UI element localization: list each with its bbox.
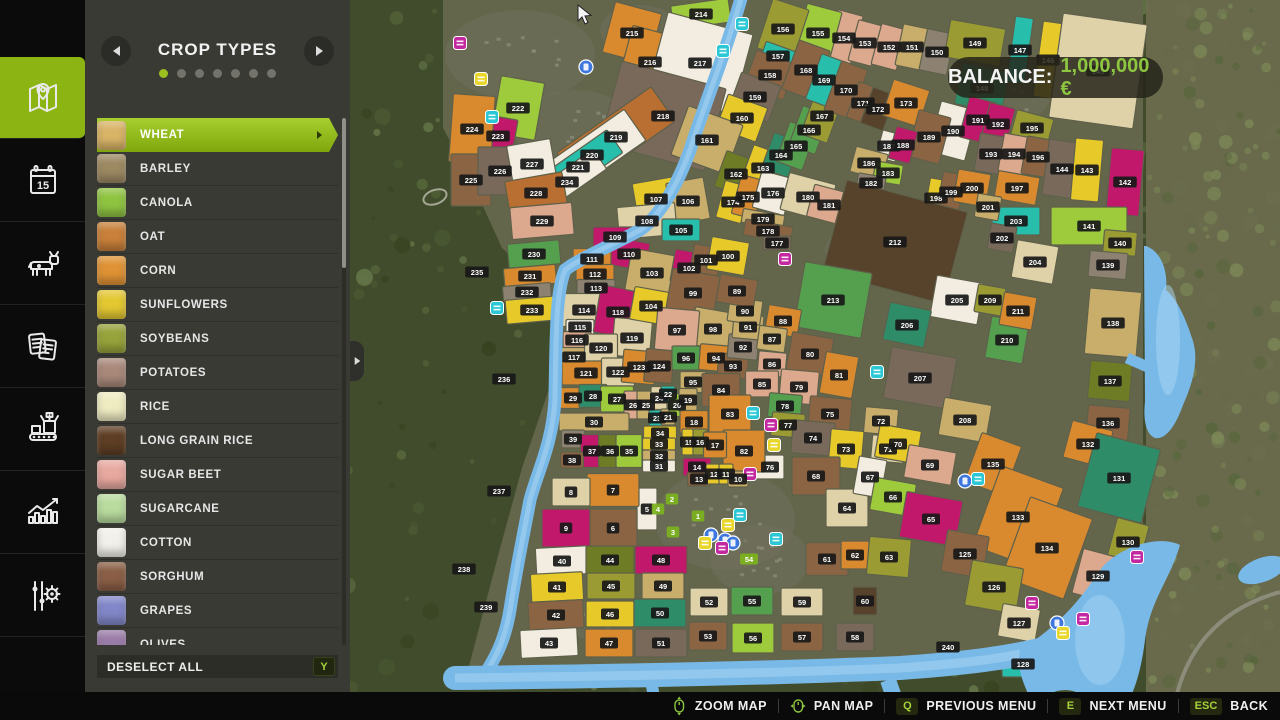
svg-text:80: 80: [806, 350, 814, 359]
svg-text:12: 12: [710, 470, 718, 479]
svg-text:51: 51: [657, 639, 665, 648]
map-poi-icon[interactable]: [747, 407, 760, 420]
svg-text:91: 91: [744, 323, 752, 332]
svg-text:144: 144: [1056, 165, 1069, 174]
svg-text:188: 188: [897, 141, 910, 150]
sidebar-tab-calendar[interactable]: 15: [0, 140, 85, 222]
crop-row-potatoes[interactable]: POTATOES: [97, 356, 338, 390]
svg-text:110: 110: [623, 250, 635, 259]
field-badge-83: 83: [721, 409, 739, 420]
field-badge-210: 210: [995, 335, 1019, 346]
svg-text:19: 19: [684, 396, 692, 405]
svg-text:111: 111: [586, 255, 598, 264]
map-poi-icon[interactable]: [491, 302, 504, 315]
field-badge-84: 84: [712, 385, 730, 396]
field-badge-54: 54: [740, 554, 758, 565]
field-badge-181: 181: [817, 200, 841, 211]
map-poi-icon[interactable]: [768, 439, 781, 452]
svg-text:127: 127: [1013, 619, 1026, 628]
svg-text:78: 78: [781, 402, 789, 411]
chevron-right-icon: [316, 46, 323, 56]
deselect-all-label: DESELECT ALL: [97, 660, 313, 674]
field-badge-239: 239: [474, 602, 498, 613]
field-badge-104: 104: [639, 301, 663, 312]
field-badge-87: 87: [763, 334, 781, 345]
field-badge-57: 57: [793, 632, 811, 643]
svg-text:100: 100: [722, 252, 735, 261]
field-badge-232: 232: [515, 287, 539, 298]
field-badge-81: 81: [830, 370, 848, 381]
svg-text:230: 230: [528, 250, 541, 259]
svg-text:124: 124: [653, 362, 666, 371]
svg-text:79: 79: [795, 383, 803, 392]
crop-row-sorghum[interactable]: SORGHUM: [97, 560, 338, 594]
canola-icon: [97, 188, 126, 217]
svg-text:49: 49: [659, 582, 667, 591]
crop-row-olives[interactable]: OLIVES: [97, 628, 338, 645]
field-badge-46: 46: [601, 609, 619, 620]
field-badge-70: 70: [889, 439, 907, 450]
map-poi-icon[interactable]: [734, 509, 747, 522]
field-badge-103: 103: [640, 268, 664, 279]
crop-label: POTATOES: [140, 367, 206, 379]
svg-text:173: 173: [900, 99, 913, 108]
field-badge-115: 115: [568, 322, 592, 333]
page-dot-5[interactable]: [249, 69, 258, 78]
field-badge-88: 88: [774, 316, 792, 327]
svg-text:33: 33: [655, 440, 663, 449]
svg-text:200: 200: [966, 184, 979, 193]
mouse-icon: [790, 696, 806, 716]
map-poi-icon[interactable]: [770, 533, 783, 546]
crop-label: LONG GRAIN RICE: [140, 435, 253, 447]
map-poi-icon[interactable]: [1131, 551, 1144, 564]
field-badge-128: 128: [1011, 659, 1035, 670]
scrollbar-thumb[interactable]: [342, 118, 346, 268]
map-poi-icon[interactable]: [1077, 613, 1090, 626]
field-badge-134: 134: [1035, 543, 1059, 554]
field-badge-36: 36: [601, 446, 619, 457]
separator: [1178, 699, 1179, 713]
svg-text:229: 229: [536, 217, 549, 226]
svg-text:238: 238: [458, 565, 471, 574]
svg-text:108: 108: [641, 217, 654, 226]
deselect-all-button[interactable]: DESELECT ALL Y: [97, 655, 338, 678]
page-dot-3[interactable]: [213, 69, 222, 78]
field-badge-224: 224: [460, 124, 484, 135]
field-badge-80: 80: [801, 349, 819, 360]
map-poi-icon[interactable]: [779, 253, 792, 266]
svg-text:43: 43: [545, 639, 553, 648]
crop-label: BARLEY: [140, 163, 191, 175]
field-badge-4: 4: [652, 504, 665, 515]
svg-text:226: 226: [494, 167, 507, 176]
map-poi-icon[interactable]: [1026, 597, 1039, 610]
grapes-icon: [97, 596, 126, 625]
field-badge-75: 75: [821, 409, 839, 420]
crop-row-rice[interactable]: RICE: [97, 390, 338, 424]
sugar-beet-icon: [97, 460, 126, 489]
svg-text:182: 182: [865, 179, 878, 188]
contracts-icon: [21, 325, 65, 369]
field-badge-231: 231: [518, 271, 542, 282]
field-badge-34: 34: [651, 428, 669, 439]
panel-collapse-tab[interactable]: [350, 341, 364, 381]
svg-text:34: 34: [656, 429, 665, 438]
svg-text:97: 97: [673, 326, 681, 335]
svg-text:228: 228: [530, 189, 543, 198]
crop-types-panel: CROP TYPES WHEATBARLEYCANOLAOATCORNSUNFL…: [85, 0, 350, 692]
sidebar-tab-production[interactable]: [0, 389, 85, 471]
field-badge-229: 229: [530, 216, 554, 227]
field-badge-93: 93: [724, 361, 742, 372]
crop-row-sugar-beet[interactable]: SUGAR BEET: [97, 458, 338, 492]
svg-text:151: 151: [906, 43, 919, 52]
field-badge-137: 137: [1098, 376, 1122, 387]
map-poi-icon[interactable]: [736, 18, 749, 31]
field-badge-225: 225: [459, 175, 483, 186]
svg-text:70: 70: [894, 440, 902, 449]
crop-row-corn[interactable]: CORN: [97, 254, 338, 288]
field-badge-199: 199: [939, 187, 963, 198]
svg-text:211: 211: [1012, 307, 1024, 316]
crop-list-scrollbar[interactable]: [342, 118, 346, 645]
svg-text:5: 5: [645, 505, 649, 514]
svg-text:234: 234: [561, 178, 574, 187]
field-badge-74: 74: [804, 433, 822, 444]
sidebar-tab-statistics[interactable]: [0, 472, 85, 554]
svg-text:140: 140: [1114, 239, 1127, 248]
crop-row-canola[interactable]: CANOLA: [97, 186, 338, 220]
field-badge-153: 153: [853, 38, 877, 49]
field-badge-228: 228: [524, 188, 548, 199]
hotkey-pan-map[interactable]: PAN MAP: [790, 696, 874, 716]
svg-text:147: 147: [1014, 46, 1027, 55]
field-badge-96: 96: [677, 353, 695, 364]
map-poi-icon[interactable]: [717, 45, 730, 58]
field-badge-163: 163: [751, 163, 775, 174]
field-badge-213: 213: [821, 295, 845, 306]
field-badge-89: 89: [728, 286, 746, 297]
svg-text:131: 131: [1113, 474, 1126, 483]
crop-row-oat[interactable]: OAT: [97, 220, 338, 254]
svg-text:2: 2: [670, 495, 674, 504]
svg-text:119: 119: [626, 334, 638, 343]
field-badge-44: 44: [601, 555, 619, 566]
svg-text:102: 102: [683, 264, 696, 273]
svg-text:166: 166: [803, 126, 816, 135]
svg-text:223: 223: [492, 132, 505, 141]
map-poi-icon[interactable]: [486, 111, 499, 124]
map-icon: [21, 76, 65, 120]
page-dot-1[interactable]: [177, 69, 186, 78]
svg-text:112: 112: [589, 270, 601, 279]
field-badge-206: 206: [895, 320, 919, 331]
soybeans-icon: [97, 324, 126, 353]
field-badge-204: 204: [1023, 257, 1047, 268]
field-badge-22: 22: [659, 389, 677, 400]
svg-text:36: 36: [606, 447, 614, 456]
field-badge-182: 182: [859, 178, 883, 189]
field-badge-154: 154: [832, 33, 856, 44]
map-poi-icon[interactable]: [765, 419, 778, 432]
svg-text:217: 217: [694, 59, 707, 68]
crop-label: SORGHUM: [140, 571, 204, 583]
svg-text:8: 8: [569, 488, 573, 497]
svg-text:159: 159: [749, 93, 762, 102]
svg-text:152: 152: [883, 43, 896, 52]
field-badge-144: 144: [1050, 164, 1074, 175]
svg-text:38: 38: [568, 456, 576, 465]
field-badge-172: 172: [866, 104, 890, 115]
field-badge-151: 151: [900, 42, 924, 53]
sidebar-tab-settings[interactable]: [0, 555, 85, 637]
svg-text:113: 113: [590, 284, 602, 293]
page-dot-0[interactable]: [159, 69, 168, 78]
field-badge-50: 50: [651, 608, 669, 619]
field-badge-82: 82: [735, 446, 753, 457]
field-badge-101: 101: [694, 255, 718, 266]
olives-icon: [97, 630, 126, 645]
svg-text:170: 170: [840, 86, 853, 95]
field-badge-175: 175: [736, 192, 760, 203]
crop-label: RICE: [140, 401, 170, 413]
svg-text:32: 32: [655, 452, 663, 461]
field-badge-30: 30: [585, 417, 603, 428]
map-poi-icon[interactable]: [579, 60, 593, 74]
field-badge-41: 41: [548, 582, 566, 593]
field-badge-113: 113: [584, 283, 608, 294]
svg-text:56: 56: [749, 634, 757, 643]
map-poi-icon[interactable]: [475, 73, 488, 86]
svg-text:52: 52: [705, 598, 713, 607]
page-next-button[interactable]: [304, 36, 334, 66]
svg-text:121: 121: [580, 369, 593, 378]
svg-text:176: 176: [767, 189, 780, 198]
potatoes-icon: [97, 358, 126, 387]
field-badge-183: 183: [876, 168, 900, 179]
svg-text:73: 73: [842, 445, 850, 454]
sidebar-tab-contracts[interactable]: [0, 306, 85, 388]
crop-row-cotton[interactable]: COTTON: [97, 526, 338, 560]
svg-text:41: 41: [553, 583, 561, 592]
svg-text:186: 186: [863, 159, 876, 168]
svg-text:142: 142: [1119, 178, 1132, 187]
field-badge-107: 107: [644, 194, 668, 205]
svg-text:104: 104: [645, 302, 658, 311]
crop-row-sunflowers[interactable]: SUNFLOWERS: [97, 288, 338, 322]
svg-text:99: 99: [689, 289, 697, 298]
separator: [1047, 699, 1048, 713]
field-badge-59: 59: [793, 597, 811, 608]
field-badge-219: 219: [604, 132, 628, 143]
svg-text:27: 27: [613, 395, 621, 404]
key-y-badge: Y: [313, 657, 335, 676]
field-badge-64: 64: [838, 503, 856, 514]
map-poi-icon[interactable]: [454, 37, 467, 50]
map-poi-icon[interactable]: [716, 542, 729, 555]
field-badge-208: 208: [953, 415, 977, 426]
sunflowers-icon: [97, 290, 126, 319]
svg-text:81: 81: [835, 371, 843, 380]
field-badge-124: 124: [647, 361, 671, 372]
crop-row-grapes[interactable]: GRAPES: [97, 594, 338, 628]
field-badge-69: 69: [921, 460, 939, 471]
svg-text:35: 35: [625, 447, 633, 456]
field-badge-73: 73: [837, 444, 855, 455]
svg-text:69: 69: [926, 461, 934, 470]
field-badge-162: 162: [724, 169, 748, 180]
field-badge-227: 227: [520, 159, 544, 170]
map-poi-icon[interactable]: [722, 519, 735, 532]
svg-text:106: 106: [682, 197, 695, 206]
field-badge-110: 110: [617, 249, 641, 260]
hotkey-previous-menu[interactable]: QPREVIOUS MENU: [896, 698, 1036, 715]
svg-text:153: 153: [859, 39, 872, 48]
svg-text:118: 118: [612, 308, 624, 317]
field-badge-129: 129: [1086, 571, 1110, 582]
svg-text:95: 95: [689, 378, 697, 387]
field-badge-45: 45: [602, 581, 620, 592]
field-badge-28: 28: [584, 391, 602, 402]
crop-row-barley[interactable]: BARLEY: [97, 152, 338, 186]
svg-text:233: 233: [526, 306, 539, 315]
field-badge-176: 176: [761, 188, 785, 199]
svg-text:15: 15: [36, 180, 48, 192]
svg-text:219: 219: [610, 133, 623, 142]
page-dot-6[interactable]: [267, 69, 276, 78]
rice-icon: [97, 392, 126, 421]
field-badge-14: 14: [688, 462, 706, 473]
svg-text:67: 67: [866, 473, 874, 482]
field-badge-122: 122: [606, 367, 630, 378]
map-poi-icon[interactable]: [699, 537, 712, 550]
svg-text:130: 130: [1122, 538, 1135, 547]
field-badge-131: 131: [1107, 473, 1131, 484]
crop-row-wheat[interactable]: WHEAT: [97, 118, 338, 152]
svg-text:94: 94: [712, 354, 721, 363]
field-badge-111: 111: [580, 254, 604, 265]
svg-text:123: 123: [633, 363, 646, 372]
field-badge-90: 90: [736, 306, 754, 317]
field-badge-79: 79: [790, 382, 808, 393]
page-dot-4[interactable]: [231, 69, 240, 78]
svg-text:141: 141: [1083, 222, 1096, 231]
svg-text:129: 129: [1092, 572, 1105, 581]
field-badge-100: 100: [716, 251, 740, 262]
svg-text:191: 191: [972, 116, 985, 125]
balance-pill: BALANCE: 1,000,000 €: [948, 57, 1163, 98]
field-badge-178: 178: [756, 226, 780, 237]
svg-text:83: 83: [726, 410, 734, 419]
field-badge-86: 86: [763, 359, 781, 370]
svg-text:26: 26: [629, 401, 637, 410]
sorghum-icon: [97, 562, 126, 591]
hotkey-next-menu[interactable]: ENEXT MENU: [1059, 698, 1166, 715]
crop-label: SUGAR BEET: [140, 469, 221, 481]
map-poi-icon[interactable]: [1057, 627, 1070, 640]
svg-text:65: 65: [927, 515, 935, 524]
svg-text:103: 103: [646, 269, 659, 278]
field-badge-117: 117: [562, 352, 586, 363]
svg-text:179: 179: [757, 215, 770, 224]
field-badge-61: 61: [818, 554, 836, 565]
svg-text:139: 139: [1102, 261, 1115, 270]
crop-row-sugarcane[interactable]: SUGARCANE: [97, 492, 338, 526]
svg-text:115: 115: [574, 323, 586, 332]
field-badge-76: 76: [761, 462, 779, 473]
map-poi-icon[interactable]: [972, 473, 985, 486]
svg-text:22: 22: [664, 390, 672, 399]
svg-text:160: 160: [736, 114, 749, 123]
svg-text:132: 132: [1082, 440, 1095, 449]
svg-text:125: 125: [959, 550, 972, 559]
crop-label: SOYBEANS: [140, 333, 209, 345]
map-poi-icon[interactable]: [871, 366, 884, 379]
hotkey-back[interactable]: ESCBACK: [1190, 698, 1268, 715]
field-badge-205: 205: [945, 295, 969, 306]
crop-label: WHEAT: [140, 129, 184, 141]
balance-value: 1,000,000 €: [1060, 55, 1163, 101]
field-badge-21: 21: [659, 412, 677, 423]
svg-text:72: 72: [877, 417, 885, 426]
crop-row-long-grain-rice[interactable]: LONG GRAIN RICE: [97, 424, 338, 458]
svg-text:87: 87: [768, 335, 776, 344]
svg-text:210: 210: [1001, 336, 1014, 345]
hotkey-zoom-map[interactable]: ZOOM MAP: [671, 696, 767, 716]
sidebar-tab-map[interactable]: [0, 57, 85, 139]
field-badge-43: 43: [540, 638, 558, 649]
svg-text:114: 114: [578, 306, 591, 315]
sugarcane-icon: [97, 494, 126, 523]
svg-text:154: 154: [838, 34, 851, 43]
field-badge-114: 114: [572, 305, 596, 316]
svg-text:165: 165: [790, 142, 803, 151]
field-badge-233: 233: [520, 305, 544, 316]
svg-text:155: 155: [812, 29, 825, 38]
hotkey-label: ZOOM MAP: [695, 699, 767, 713]
svg-text:39: 39: [569, 435, 577, 444]
svg-text:128: 128: [1017, 660, 1030, 669]
svg-text:17: 17: [711, 441, 719, 450]
field-badge-220: 220: [580, 150, 604, 161]
field-badge-91: 91: [739, 322, 757, 333]
svg-text:48: 48: [657, 556, 665, 565]
svg-text:85: 85: [758, 380, 766, 389]
field-badge-42: 42: [547, 610, 565, 621]
field-badge-143: 143: [1075, 165, 1099, 176]
field-badge-211: 211: [1006, 306, 1030, 317]
svg-text:194: 194: [1008, 150, 1021, 159]
corn-icon: [97, 256, 126, 285]
field-badge-142: 142: [1113, 177, 1137, 188]
field-badge-218: 218: [651, 111, 675, 122]
svg-text:216: 216: [644, 58, 657, 67]
map-poi-icon[interactable]: [958, 474, 972, 488]
page-dot-2[interactable]: [195, 69, 204, 78]
cotton-icon: [97, 528, 126, 557]
svg-text:62: 62: [851, 551, 859, 560]
svg-text:122: 122: [612, 368, 625, 377]
crop-row-soybeans[interactable]: SOYBEANS: [97, 322, 338, 356]
svg-text:134: 134: [1041, 544, 1054, 553]
field-badge-68: 68: [807, 471, 825, 482]
svg-text:74: 74: [809, 434, 818, 443]
field-badge-238: 238: [452, 564, 476, 575]
svg-text:220: 220: [586, 151, 599, 160]
sidebar-tab-animals[interactable]: [0, 223, 85, 305]
field-badge-29: 29: [564, 393, 582, 404]
